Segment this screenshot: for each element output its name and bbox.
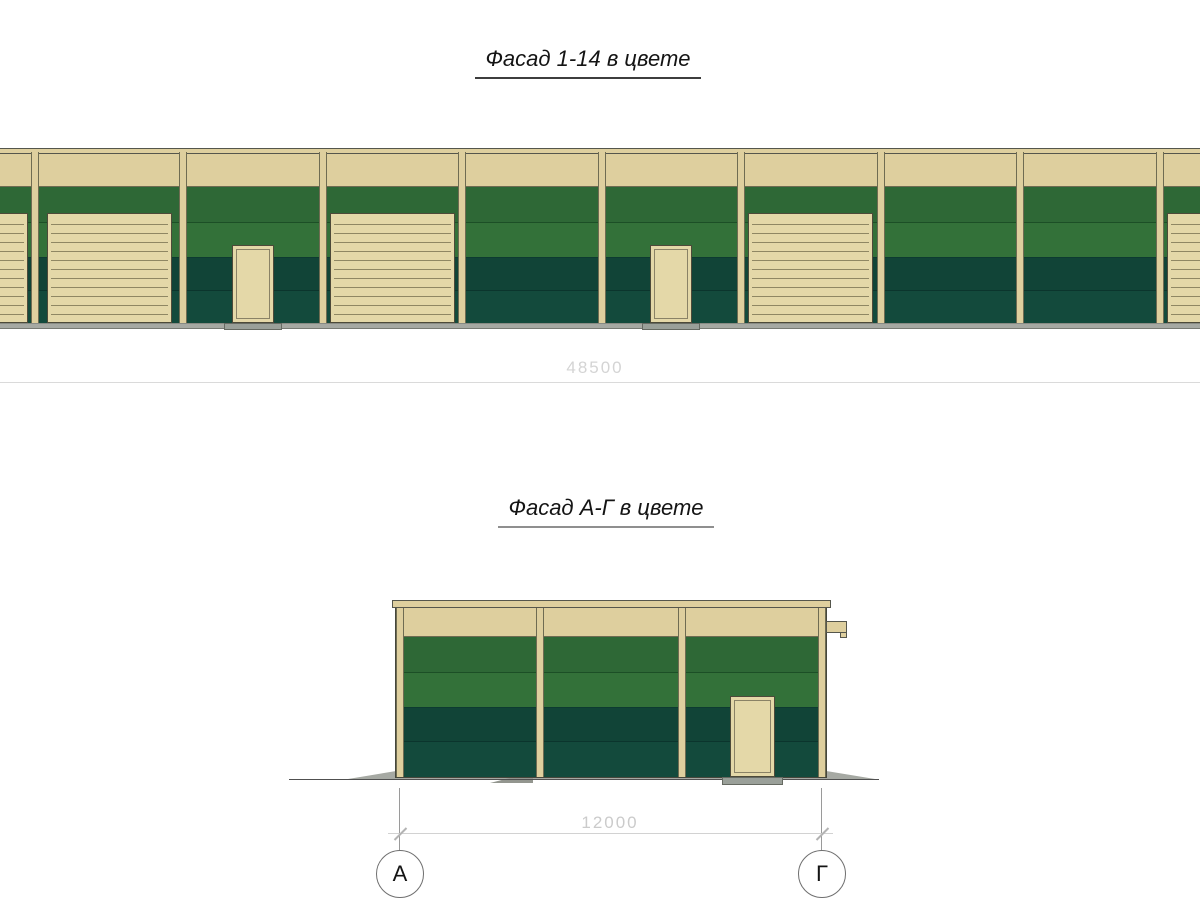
personnel-door-leaf — [734, 700, 771, 773]
facade-a-g-title-text: Фасад А-Г в цвете — [498, 495, 713, 528]
facade-1-14-title-text: Фасад 1-14 в цвете — [475, 46, 700, 79]
door-threshold — [722, 777, 783, 785]
pilaster — [598, 152, 606, 323]
pilaster — [877, 152, 885, 323]
personnel-door-leaf — [236, 249, 270, 319]
pilaster — [179, 152, 187, 323]
pilaster — [737, 152, 745, 323]
personnel-door — [650, 245, 692, 323]
pilaster — [1016, 152, 1024, 323]
axis-marker-a: А — [376, 850, 424, 898]
plinth-strip — [0, 323, 1200, 330]
pilaster — [818, 608, 826, 777]
personnel-door-leaf — [654, 249, 688, 319]
garage-door-slats — [51, 216, 168, 320]
scupper-drip — [840, 633, 847, 638]
facade-drawing-canvas: Фасад 1-14 в цвете 48500 Фасад А-Г в цве… — [0, 0, 1200, 900]
garage-door-slats — [334, 216, 451, 320]
pilaster — [319, 152, 327, 323]
garage-door-slats — [752, 216, 869, 320]
pilaster — [31, 152, 39, 323]
garage-door — [0, 213, 28, 323]
personnel-door — [232, 245, 274, 323]
facade-a-g-title: Фасад А-Г в цвете — [0, 495, 1200, 528]
pilaster — [1156, 152, 1164, 323]
garage-door — [47, 213, 172, 323]
garage-door — [748, 213, 873, 323]
parapet-coping — [392, 600, 831, 608]
pilaster — [458, 152, 466, 323]
garage-door — [1167, 213, 1200, 323]
facade-1-14-dimension-value: 48500 — [0, 358, 1190, 378]
facade-a-g-dimension-value: 12000 — [0, 813, 1200, 833]
personnel-door — [730, 696, 775, 777]
garage-door-slats — [1171, 216, 1200, 320]
ground-line — [289, 779, 879, 780]
pilaster — [678, 608, 686, 777]
facade-1-14-title: Фасад 1-14 в цвете — [0, 46, 1200, 79]
pilaster — [536, 608, 544, 777]
garage-door-slats — [0, 216, 24, 320]
door-threshold — [224, 323, 282, 330]
garage-door — [330, 213, 455, 323]
axis-marker-g: Г — [798, 850, 846, 898]
door-threshold — [642, 323, 700, 330]
facade-1-14-dimension-line — [0, 382, 1200, 383]
scupper-spout — [826, 621, 847, 634]
facade-a-g-dimension-line — [388, 833, 833, 834]
pilaster — [396, 608, 404, 777]
